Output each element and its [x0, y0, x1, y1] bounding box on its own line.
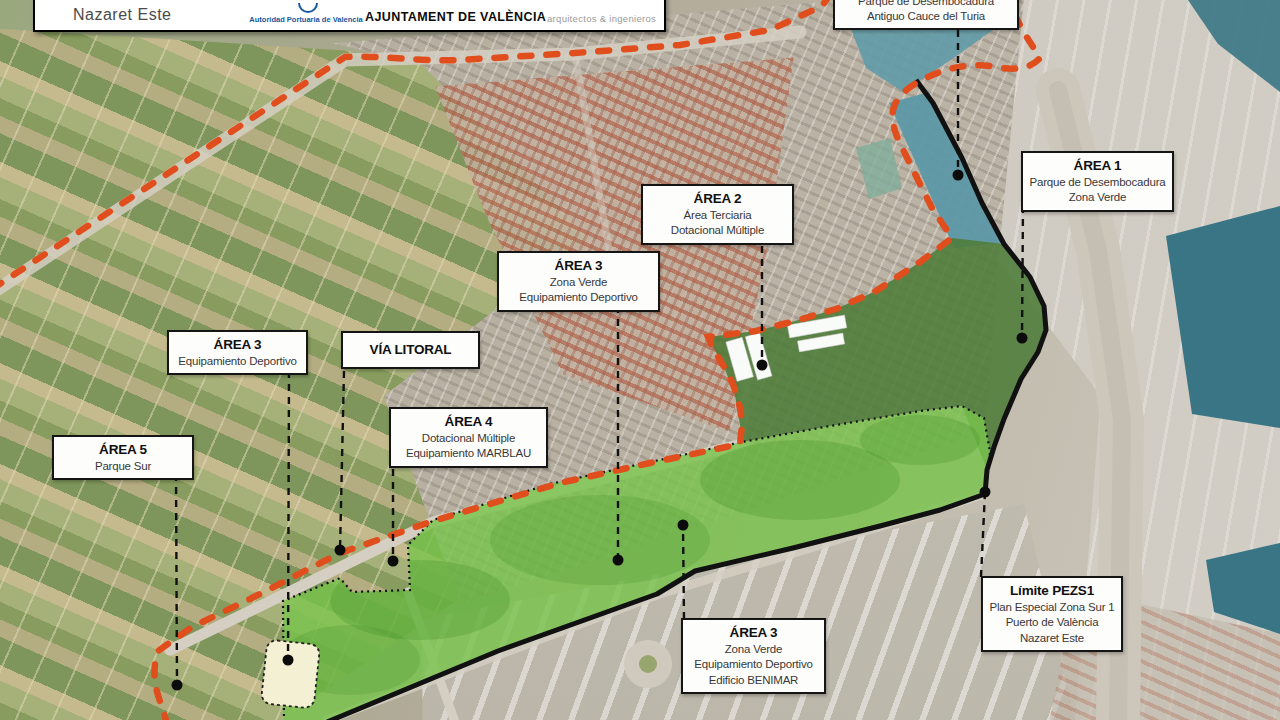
- architects-label: arquitectos & ingenieros: [547, 13, 656, 24]
- label-line: Parque de Desembocadura: [1029, 175, 1166, 190]
- label-line: Zona Verde: [1029, 190, 1166, 205]
- label-line: Parque de Desembocadura: [841, 0, 1011, 9]
- harbor-water-east: [1166, 206, 1280, 428]
- label-area-5: ÁREA 5 Parque Sur: [52, 435, 194, 480]
- label-line: Equipamiento Deportivo: [689, 657, 818, 672]
- label-line: Zona Verde: [689, 642, 818, 657]
- title-block: Nazaret Este Autoridad Portuaria de Vale…: [33, 0, 666, 32]
- label-title: Límite PEZS1: [989, 582, 1115, 600]
- harbor-water-top: [1188, 0, 1280, 92]
- label-title: VÍA LITORAL: [349, 341, 472, 359]
- plan-map: Nazaret Este Autoridad Portuaria de Vale…: [0, 0, 1280, 720]
- label-line: Antiguo Cauce del Turia: [841, 9, 1011, 24]
- label-line: Puerto de València: [989, 615, 1115, 630]
- label-area-3-benimar: ÁREA 3 Zona Verde Equipamiento Deportivo…: [681, 618, 826, 694]
- edificio-benimar-footprint: [261, 639, 320, 708]
- label-title: ÁREA 3: [689, 624, 818, 642]
- label-line: Plan Especial Zona Sur 1: [989, 600, 1115, 615]
- port-authority-label: Autoridad Portuaria de Valencia: [240, 15, 372, 24]
- port-authority-logo: [298, 3, 318, 13]
- project-title: Nazaret Este: [73, 6, 171, 24]
- port-authority-name: Autoridad Portuaria de Valencia: [249, 15, 362, 24]
- city-council-label: AJUNTAMENT DE VALÈNCIA: [365, 10, 546, 24]
- label-area-2: ÁREA 2 Área Terciaria Dotacional Múltipl…: [641, 184, 794, 245]
- label-title: ÁREA 5: [60, 441, 186, 459]
- label-line: Dotacional Múltiple: [397, 431, 540, 446]
- roundabout-center: [639, 655, 657, 673]
- label-line: Nazaret Este: [989, 631, 1115, 646]
- pond-water: [856, 138, 902, 199]
- label-title: ÁREA 3: [505, 257, 652, 275]
- harbor-water-south: [1206, 543, 1280, 634]
- label-line: Dotacional Múltiple: [649, 223, 786, 238]
- label-line: Equipamiento MARBLAU: [397, 446, 540, 461]
- label-via-litoral: VÍA LITORAL: [341, 331, 480, 369]
- label-limite-pezs1: Límite PEZS1 Plan Especial Zona Sur 1 Pu…: [981, 576, 1123, 652]
- label-line: Parque Sur: [60, 459, 186, 474]
- label-parque-desembocadura: Parque de Desembocadura Antiguo Cauce de…: [833, 0, 1019, 30]
- label-line: Equipamiento Deportivo: [505, 290, 652, 305]
- label-line: Edificio BENIMAR: [689, 673, 818, 688]
- label-line: Equipamiento Deportivo: [175, 354, 300, 369]
- label-title: ÁREA 4: [397, 413, 540, 431]
- label-area-3-centro: ÁREA 3 Zona Verde Equipamiento Deportivo: [497, 251, 660, 312]
- label-title: ÁREA 3: [175, 336, 300, 354]
- label-title: ÁREA 1: [1029, 157, 1166, 175]
- label-area-4: ÁREA 4 Dotacional Múltiple Equipamiento …: [389, 407, 548, 468]
- label-title: ÁREA 2: [649, 190, 786, 208]
- label-area-3-oeste: ÁREA 3 Equipamiento Deportivo: [167, 330, 308, 375]
- label-line: Zona Verde: [505, 275, 652, 290]
- label-area-1: ÁREA 1 Parque de Desembocadura Zona Verd…: [1021, 151, 1174, 212]
- label-line: Área Terciaria: [649, 208, 786, 223]
